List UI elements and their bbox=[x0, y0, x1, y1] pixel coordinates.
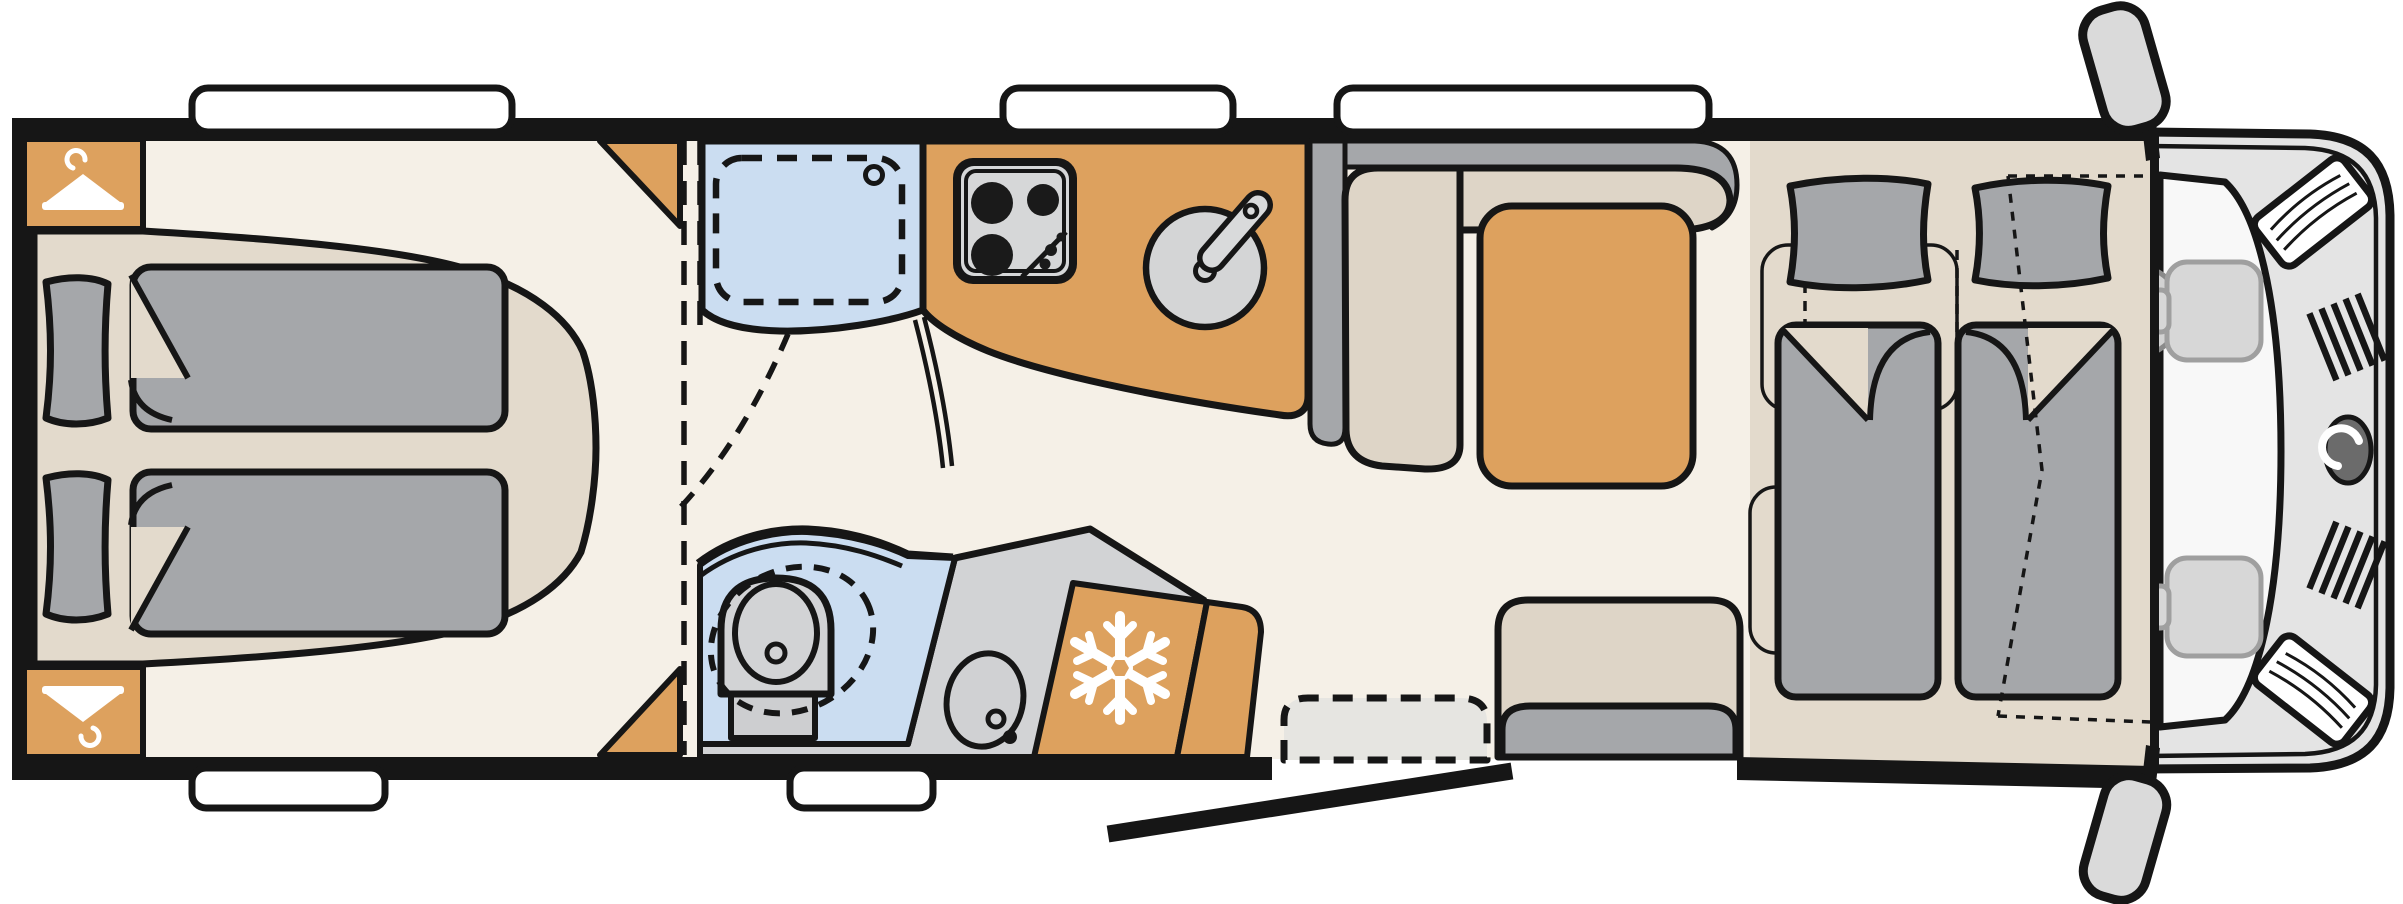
window-rear-bedroom-bottom bbox=[192, 768, 385, 808]
hob-icon bbox=[953, 158, 1077, 284]
bench-backrest-left bbox=[1310, 141, 1345, 444]
dinette bbox=[1310, 141, 1737, 486]
pillow bbox=[1975, 180, 2108, 286]
window-bathroom-bottom bbox=[790, 768, 933, 808]
floorplan-canvas bbox=[0, 0, 2403, 904]
floorplan-drawing bbox=[0, 0, 2403, 904]
pillow bbox=[1790, 178, 1928, 288]
duvet bbox=[133, 472, 505, 634]
brand-logo-icon bbox=[2322, 417, 2371, 483]
window-dinette bbox=[1337, 88, 1709, 132]
entry-bench-cushion bbox=[1502, 706, 1736, 757]
shower-floor bbox=[702, 141, 923, 331]
driver-seat bbox=[2167, 262, 2261, 360]
passenger-seat bbox=[2167, 558, 2261, 656]
dinette-table bbox=[1480, 206, 1693, 486]
cab-bulkhead-line bbox=[2150, 130, 2159, 772]
shower-cabin bbox=[702, 141, 923, 331]
entry-step-dashed bbox=[1284, 698, 1487, 760]
window-rear-bedroom-top bbox=[192, 88, 512, 132]
pillow bbox=[46, 474, 108, 620]
entry-door-open bbox=[1108, 771, 1512, 834]
pillow bbox=[46, 278, 108, 424]
duvet bbox=[133, 267, 505, 429]
window-kitchen bbox=[1003, 88, 1233, 132]
bench-cushion-side bbox=[1345, 168, 1460, 469]
sink-icon bbox=[1146, 205, 1264, 327]
